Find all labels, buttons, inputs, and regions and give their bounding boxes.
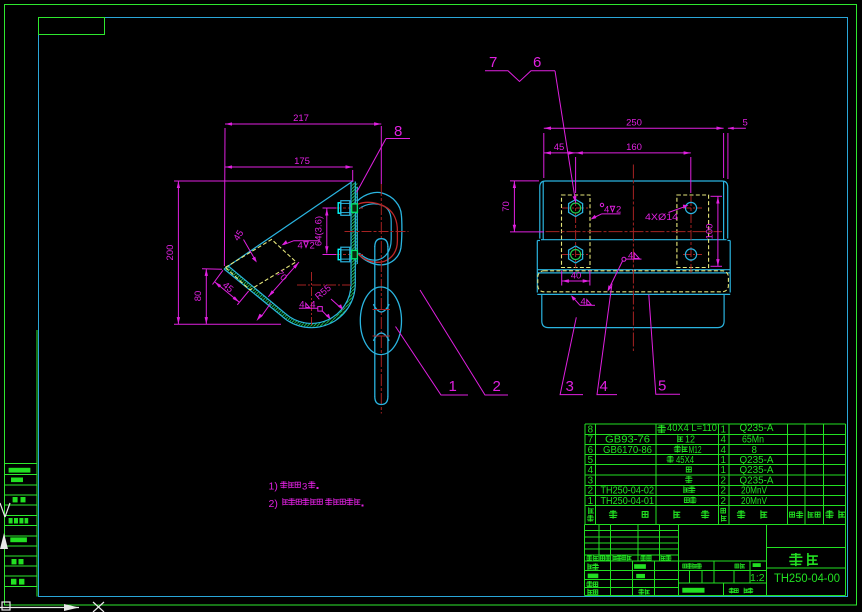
svg-text:217: 217: [293, 113, 309, 124]
svg-text:2: 2: [721, 496, 726, 507]
svg-text:4XØ14: 4XØ14: [645, 212, 678, 223]
svg-text:45X4: 45X4: [676, 455, 694, 466]
svg-text:4: 4: [581, 296, 586, 307]
svg-text:100: 100: [705, 224, 716, 240]
svg-text:175: 175: [294, 156, 310, 167]
svg-text:5: 5: [743, 118, 748, 129]
svg-text:TH250-04-01: TH250-04-01: [601, 496, 655, 507]
svg-text:1): 1): [269, 481, 278, 493]
svg-text:2: 2: [310, 240, 315, 251]
svg-text:40: 40: [571, 270, 582, 281]
svg-text:2): 2): [269, 498, 278, 510]
svg-text:1: 1: [588, 496, 593, 507]
svg-text:40X4 L=110: 40X4 L=110: [667, 423, 718, 434]
svg-text:3: 3: [302, 482, 307, 493]
svg-text:4: 4: [299, 299, 304, 310]
svg-text:4: 4: [628, 250, 633, 261]
svg-text:5: 5: [658, 378, 666, 395]
svg-text:7: 7: [489, 54, 497, 71]
svg-text:1:2: 1:2: [750, 572, 765, 584]
svg-text:6: 6: [533, 54, 541, 71]
svg-text:4: 4: [298, 240, 303, 251]
svg-text:4: 4: [604, 205, 609, 216]
svg-text:4: 4: [600, 378, 608, 395]
svg-text:80: 80: [193, 291, 204, 302]
svg-text:3: 3: [566, 378, 574, 395]
svg-text:64(3.6): 64(3.6): [314, 216, 325, 246]
svg-text:TH250-04-00: TH250-04-00: [774, 571, 840, 585]
svg-text:20MnV: 20MnV: [741, 496, 767, 507]
svg-text:GB6170-86: GB6170-86: [603, 445, 653, 456]
svg-text:160: 160: [626, 142, 642, 153]
svg-text:250: 250: [626, 118, 642, 129]
svg-text:2: 2: [616, 205, 621, 216]
svg-text:2: 2: [493, 378, 501, 395]
svg-text:Q235-A: Q235-A: [740, 423, 774, 434]
svg-text:4: 4: [310, 299, 315, 310]
svg-text:1: 1: [449, 378, 457, 395]
svg-text:200: 200: [165, 245, 176, 261]
svg-text:8: 8: [394, 123, 402, 140]
svg-text:45: 45: [554, 142, 565, 153]
svg-text:70: 70: [501, 201, 512, 212]
